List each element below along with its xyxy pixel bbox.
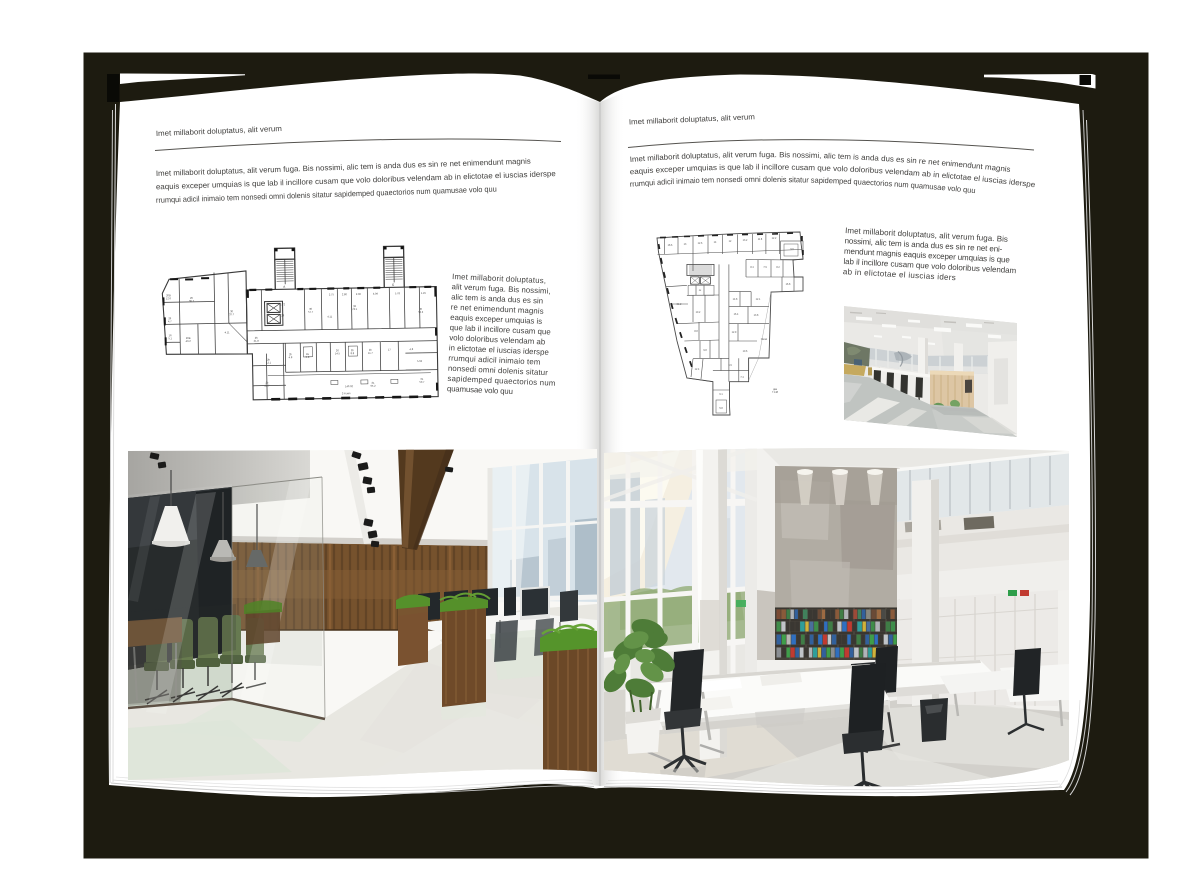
svg-text:21.8: 21.8 xyxy=(254,339,260,343)
svg-text:4.8: 4.8 xyxy=(289,355,293,359)
svg-text:59.2: 59.2 xyxy=(418,310,424,314)
svg-text:4.11: 4.11 xyxy=(225,330,230,334)
svg-text:16.4: 16.4 xyxy=(734,313,739,316)
svg-text:12.6: 12.6 xyxy=(698,242,703,245)
svg-text:2.80: 2.80 xyxy=(342,292,348,296)
svg-text:13.8: 13.8 xyxy=(754,314,759,317)
svg-text:13.2: 13.2 xyxy=(743,239,748,242)
svg-text:2.75: 2.75 xyxy=(329,292,335,296)
svg-text:4.11: 4.11 xyxy=(327,314,332,318)
svg-text:5.1: 5.1 xyxy=(168,336,172,340)
svg-text:12.6: 12.6 xyxy=(166,296,172,300)
svg-text:3.09: 3.09 xyxy=(373,292,379,296)
svg-text:14.8: 14.8 xyxy=(733,298,738,301)
svg-text:5.04: 5.04 xyxy=(417,359,423,363)
svg-text:18.6: 18.6 xyxy=(668,244,673,247)
svg-text:78.5: 78.5 xyxy=(352,307,358,311)
svg-text:140.92: 140.92 xyxy=(345,384,354,388)
svg-text:11.7: 11.7 xyxy=(368,351,373,355)
svg-text:50.7: 50.7 xyxy=(419,380,425,384)
svg-text:24.7: 24.7 xyxy=(264,384,270,388)
svg-text:12.1: 12.1 xyxy=(756,298,761,301)
svg-text:7.148: 7.148 xyxy=(772,391,779,394)
svg-text:12.4: 12.4 xyxy=(695,368,700,371)
svg-text:2-й зал: 2-й зал xyxy=(342,391,351,395)
svg-text:61.2: 61.2 xyxy=(677,303,682,306)
svg-text:57.7: 57.7 xyxy=(308,310,314,314)
svg-text:5.78: 5.78 xyxy=(395,291,401,295)
svg-text:12.2: 12.2 xyxy=(772,237,777,240)
svg-text:16.8: 16.8 xyxy=(786,283,791,286)
svg-text:A: A xyxy=(283,285,285,289)
svg-text:2.30: 2.30 xyxy=(356,292,362,296)
svg-text:12.1: 12.1 xyxy=(266,361,272,365)
svg-text:10.2: 10.2 xyxy=(696,311,701,314)
svg-text:12.9: 12.9 xyxy=(732,331,737,334)
svg-text:2.72: 2.72 xyxy=(280,302,286,306)
svg-text:10.6: 10.6 xyxy=(743,350,748,353)
svg-text:40.2: 40.2 xyxy=(186,339,192,343)
svg-text:4.8: 4.8 xyxy=(410,347,414,351)
svg-text:1.45: 1.45 xyxy=(421,291,427,295)
svg-text:36.2: 36.2 xyxy=(189,299,195,303)
svg-text:14.5: 14.5 xyxy=(335,351,341,355)
svg-text:9.8: 9.8 xyxy=(306,355,310,359)
svg-text:Б: Б xyxy=(392,283,394,287)
svg-text:8.8: 8.8 xyxy=(351,351,355,355)
svg-text:Увсап: Увсап xyxy=(761,338,768,341)
svg-text:4.7: 4.7 xyxy=(168,319,172,323)
svg-text:11.8: 11.8 xyxy=(758,238,763,241)
svg-text:95.2: 95.2 xyxy=(370,384,376,388)
svg-text:37.7: 37.7 xyxy=(229,312,235,316)
